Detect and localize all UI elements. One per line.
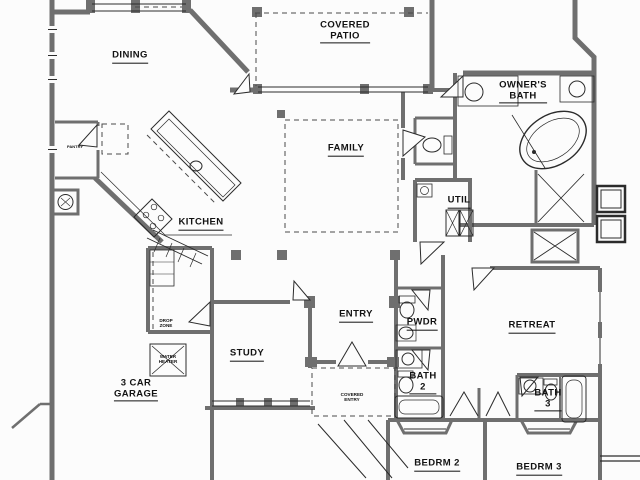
- label-covered-entry: COVEREDENTRY: [341, 393, 364, 403]
- room-label-kitchen: KITCHEN: [178, 218, 223, 231]
- dashed-layer: [102, 7, 428, 416]
- room-label-bath2: BATH2: [409, 371, 436, 394]
- room-label-bath3: BATH3: [534, 388, 561, 411]
- room-label-garage: 3 CARGARAGE: [114, 378, 158, 401]
- room-label-family: FAMILY: [328, 144, 364, 157]
- room-label-covered-patio: COVEREDPATIO: [320, 20, 370, 43]
- fixtures-layer: [58, 76, 597, 422]
- room-label-pantry: PANTRY: [67, 145, 83, 149]
- label-water-heater: WATERHEATER: [159, 355, 178, 365]
- walls-layer: [12, 0, 600, 480]
- room-label-pwdr: PWDR: [407, 318, 438, 331]
- room-label-util: UTIL: [448, 196, 471, 209]
- floor-plan: DINING COVEREDPATIO OWNER'SBATH FAMILY K…: [0, 0, 640, 480]
- room-label-bedrm3: BEDRM 3: [516, 463, 562, 476]
- site-layer: [318, 186, 640, 478]
- room-label-bedrm2: BEDRM 2: [414, 459, 460, 472]
- room-label-entry: ENTRY: [339, 310, 373, 323]
- room-label-study: STUDY: [230, 349, 264, 362]
- room-label-dining: DINING: [112, 51, 148, 64]
- room-label-retreat: RETREAT: [509, 321, 556, 334]
- windows-layer: [48, 4, 604, 433]
- room-label-owners-bath: OWNER'SBATH: [499, 80, 547, 103]
- label-drop-zone: DROPZONE: [159, 319, 172, 329]
